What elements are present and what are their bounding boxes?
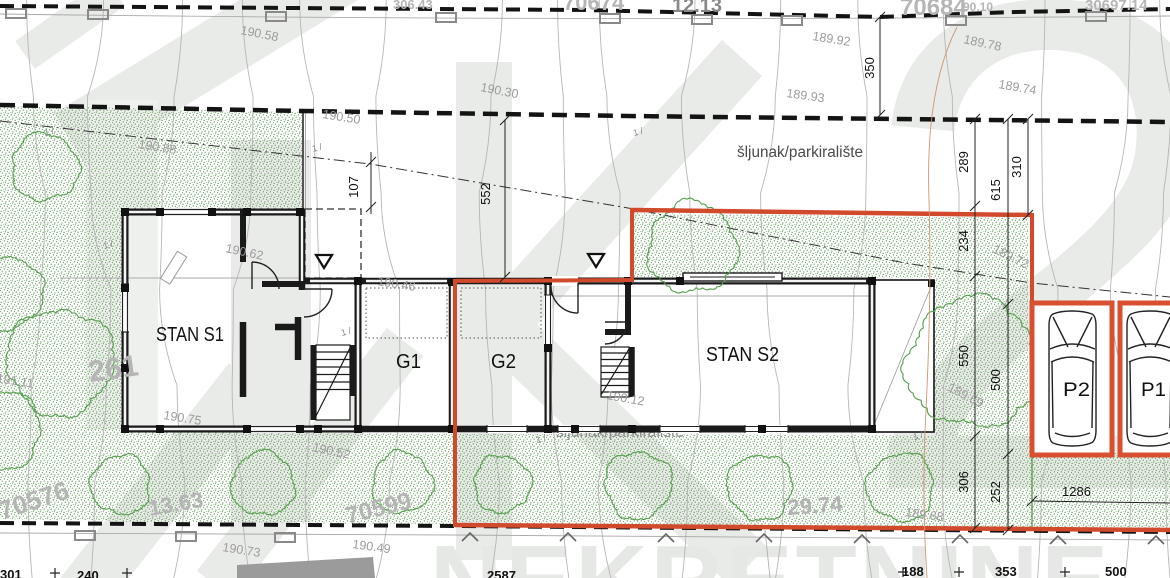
svg-text:29.74: 29.74 (787, 491, 844, 520)
svg-text:615: 615 (988, 179, 1003, 201)
svg-text:189.92: 189.92 (812, 29, 852, 49)
svg-text:12.13: 12.13 (672, 0, 722, 17)
svg-text:350: 350 (862, 57, 877, 79)
svg-text:P1: P1 (1141, 380, 1166, 401)
svg-text:306.43: 306.43 (393, 0, 433, 12)
svg-text:552: 552 (478, 183, 493, 205)
svg-text:70674: 70674 (563, 0, 625, 15)
svg-text:1286: 1286 (1062, 484, 1091, 499)
svg-text:252: 252 (988, 481, 1003, 503)
svg-text:šljunak/parkiralište: šljunak/parkiralište (737, 144, 863, 161)
svg-text:188: 188 (902, 564, 924, 578)
svg-text:306: 306 (956, 471, 971, 493)
svg-text:301: 301 (0, 567, 22, 578)
svg-text:2587: 2587 (487, 568, 516, 578)
svg-text:500: 500 (1105, 564, 1127, 578)
svg-text:310: 310 (1009, 156, 1024, 178)
svg-text:550: 550 (956, 345, 971, 367)
svg-text:G2: G2 (491, 351, 516, 373)
svg-text:STAN S1: STAN S1 (156, 324, 224, 346)
svg-text:190.49: 190.49 (352, 537, 392, 556)
svg-text:90.10: 90.10 (963, 0, 993, 14)
svg-text:190.46: 190.46 (377, 274, 417, 294)
svg-text:353: 353 (995, 564, 1017, 578)
svg-text:500: 500 (988, 369, 1003, 391)
svg-text:261: 261 (86, 349, 140, 389)
svg-text:STAN S2: STAN S2 (706, 344, 779, 366)
svg-text:P2: P2 (1063, 380, 1090, 401)
svg-text:30697.14: 30697.14 (1085, 0, 1148, 14)
svg-text:1 /: 1 / (311, 142, 324, 154)
svg-text:G1: G1 (396, 351, 421, 373)
svg-text:240: 240 (77, 568, 99, 578)
svg-text:189.93: 189.93 (786, 86, 826, 105)
svg-text:107: 107 (346, 176, 361, 198)
svg-text:289: 289 (956, 151, 971, 173)
svg-text:234: 234 (956, 230, 971, 252)
svg-text:70684: 70684 (900, 0, 967, 21)
